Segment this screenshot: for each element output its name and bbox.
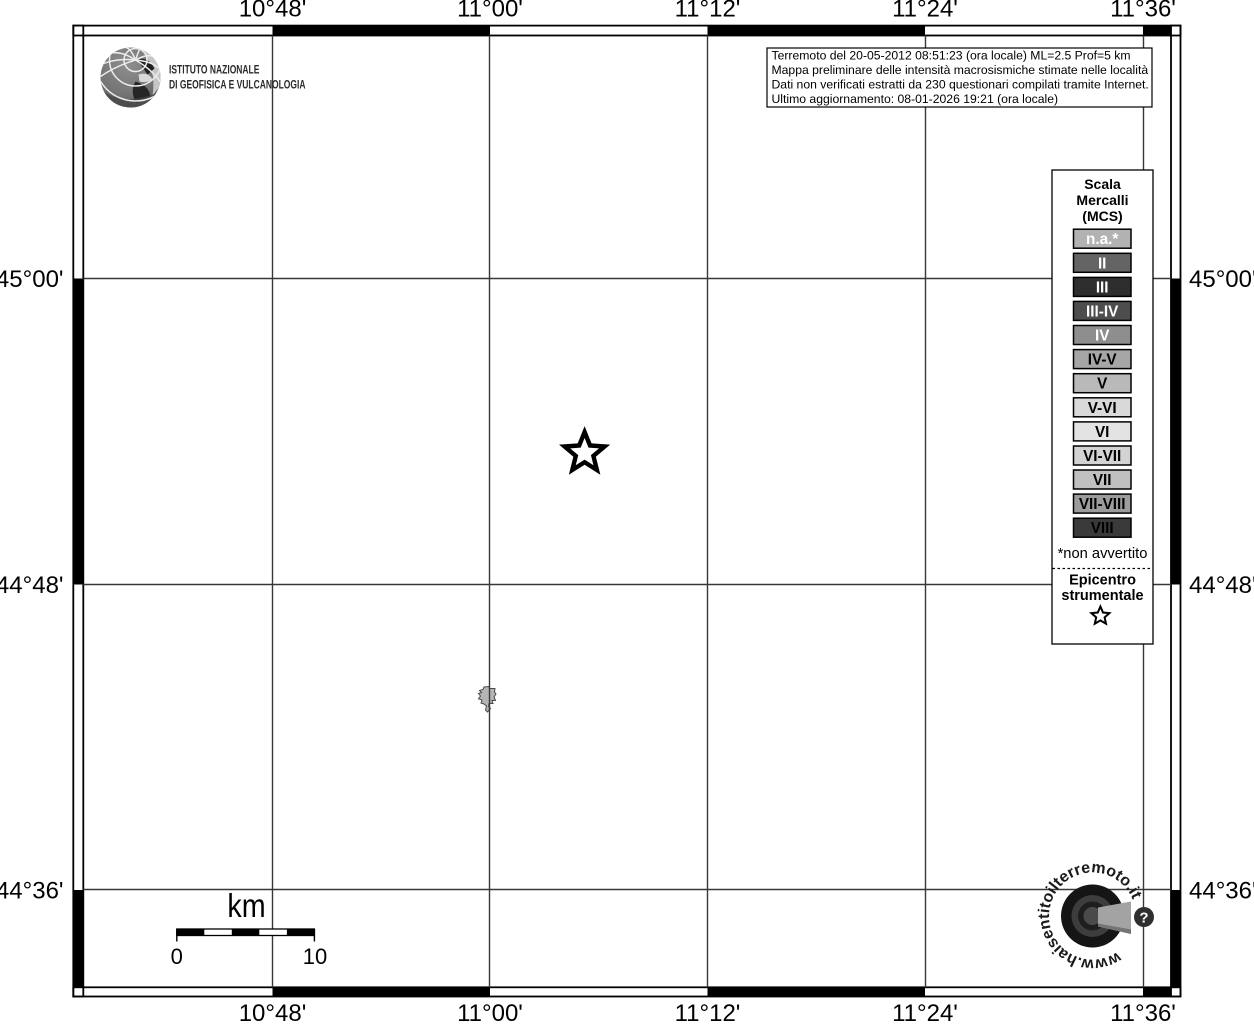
svg-text:Terremoto del 20-05-2012 08:51: Terremoto del 20-05-2012 08:51:23 (ora l… [772,49,1131,63]
svg-text:DI GEOFISICA E VULCANOLOGIA: DI GEOFISICA E VULCANOLOGIA [169,80,306,93]
svg-text:10°48': 10°48' [239,0,307,23]
svg-text:Mercalli: Mercalli [1076,192,1128,208]
svg-text:III-IV: III-IV [1086,303,1119,320]
svg-text:45°00': 45°00' [0,266,64,293]
svg-text:11°00': 11°00' [457,1000,523,1024]
svg-text:VIII: VIII [1091,520,1114,537]
svg-text:VII: VII [1093,472,1112,489]
svg-text:VI-VII: VI-VII [1083,448,1121,465]
svg-text:44°36': 44°36' [1189,878,1254,905]
svg-text:strumentale: strumentale [1061,588,1143,604]
svg-text:Scala: Scala [1084,176,1121,192]
svg-text:44°48': 44°48' [0,572,64,599]
svg-text:III: III [1096,279,1109,296]
svg-text:n.a.*: n.a.* [1086,231,1118,248]
svg-text:(MCS): (MCS) [1082,208,1122,224]
svg-text:Epicentro: Epicentro [1069,573,1136,589]
svg-text:Dati non verificati estratti d: Dati non verificati estratti da 230 ques… [772,78,1149,92]
svg-text:45°00': 45°00' [1189,266,1254,293]
svg-text:10°48': 10°48' [239,1000,307,1024]
svg-text:VII-VIII: VII-VIII [1079,496,1126,513]
svg-text:VI: VI [1095,424,1109,441]
svg-text:IV: IV [1095,328,1110,345]
svg-text:44°36': 44°36' [0,878,64,905]
svg-text:km: km [227,887,265,924]
svg-text:11°36': 11°36' [1110,1000,1176,1024]
svg-text:11°12': 11°12' [675,1000,741,1024]
svg-text:Ultimo aggiornamento: 08-01-20: Ultimo aggiornamento: 08-01-2026 19:21 (… [772,92,1059,106]
svg-text:*non avvertito: *non avvertito [1058,546,1148,562]
svg-text:10: 10 [303,944,327,969]
svg-text:11°24': 11°24' [892,1000,958,1024]
svg-text:V-VI: V-VI [1088,400,1117,417]
svg-text:11°12': 11°12' [675,0,741,23]
svg-text:V: V [1097,376,1108,393]
svg-text:44°48': 44°48' [1189,572,1254,599]
svg-text:II: II [1098,255,1107,272]
svg-text:?: ? [1139,910,1148,927]
svg-text:ISTITUTO NAZIONALE: ISTITUTO NAZIONALE [169,64,260,77]
svg-text:IV-V: IV-V [1088,352,1118,369]
svg-text:0: 0 [171,944,183,969]
svg-text:11°24': 11°24' [892,0,958,23]
svg-text:Mappa preliminare delle intens: Mappa preliminare delle intensità macros… [772,63,1149,77]
svg-text:11°00': 11°00' [457,0,523,23]
svg-text:11°36': 11°36' [1110,0,1176,23]
